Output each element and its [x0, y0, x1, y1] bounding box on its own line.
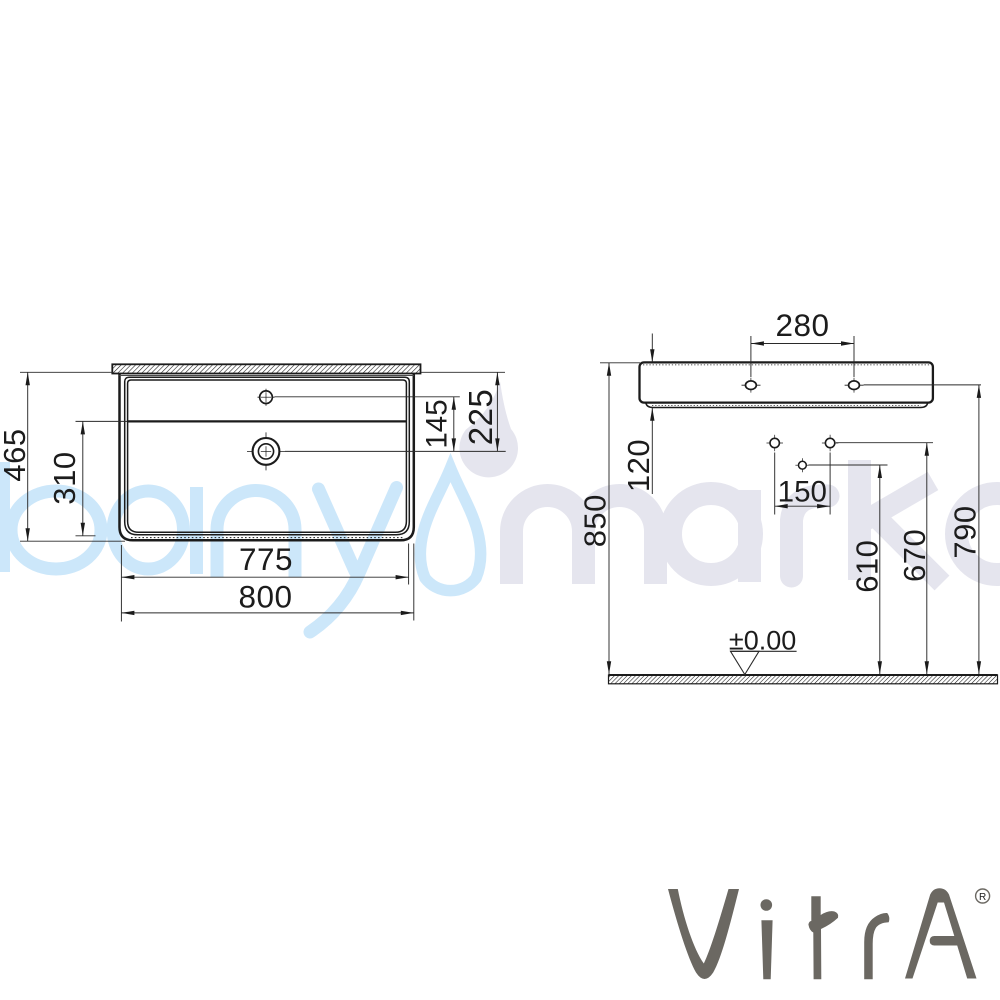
- svg-text:670: 670: [897, 529, 932, 582]
- svg-text:280: 280: [775, 307, 829, 343]
- svg-text:R: R: [979, 892, 986, 903]
- svg-text:145: 145: [421, 399, 454, 448]
- svg-text:225: 225: [462, 389, 499, 446]
- svg-text:790: 790: [947, 505, 982, 558]
- svg-text:310: 310: [47, 451, 82, 505]
- svg-text:465: 465: [0, 428, 32, 482]
- svg-text:775: 775: [239, 541, 293, 577]
- svg-text:150: 150: [778, 476, 827, 509]
- svg-text:850: 850: [577, 494, 612, 547]
- svg-text:120: 120: [621, 439, 656, 492]
- svg-text:610: 610: [849, 540, 884, 593]
- svg-text:800: 800: [238, 579, 292, 615]
